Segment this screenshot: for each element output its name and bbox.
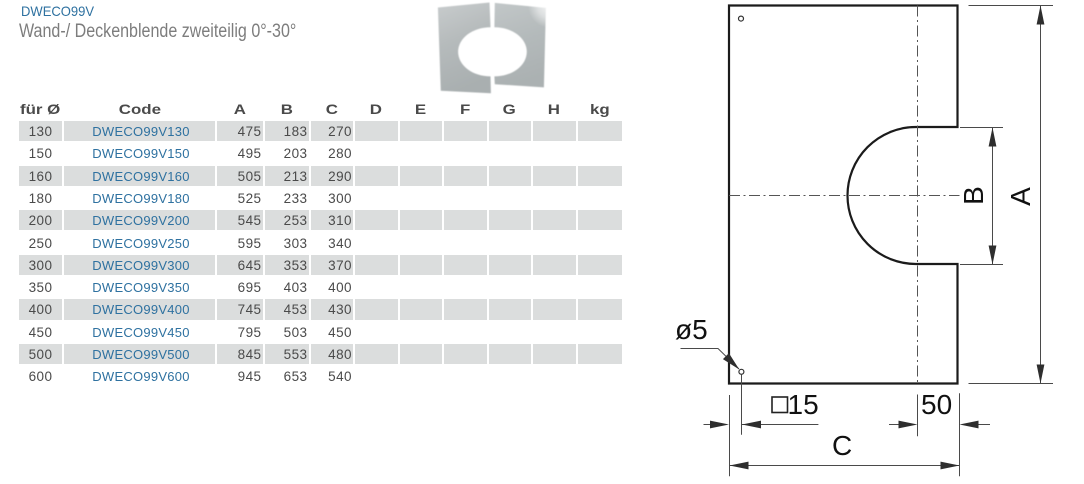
svg-text:15: 15: [788, 389, 819, 420]
svg-text:C: C: [832, 430, 852, 461]
svg-text:ø5: ø5: [675, 314, 708, 345]
svg-text:50: 50: [921, 389, 952, 420]
svg-text:B: B: [958, 186, 989, 205]
svg-text:A: A: [1005, 187, 1036, 206]
